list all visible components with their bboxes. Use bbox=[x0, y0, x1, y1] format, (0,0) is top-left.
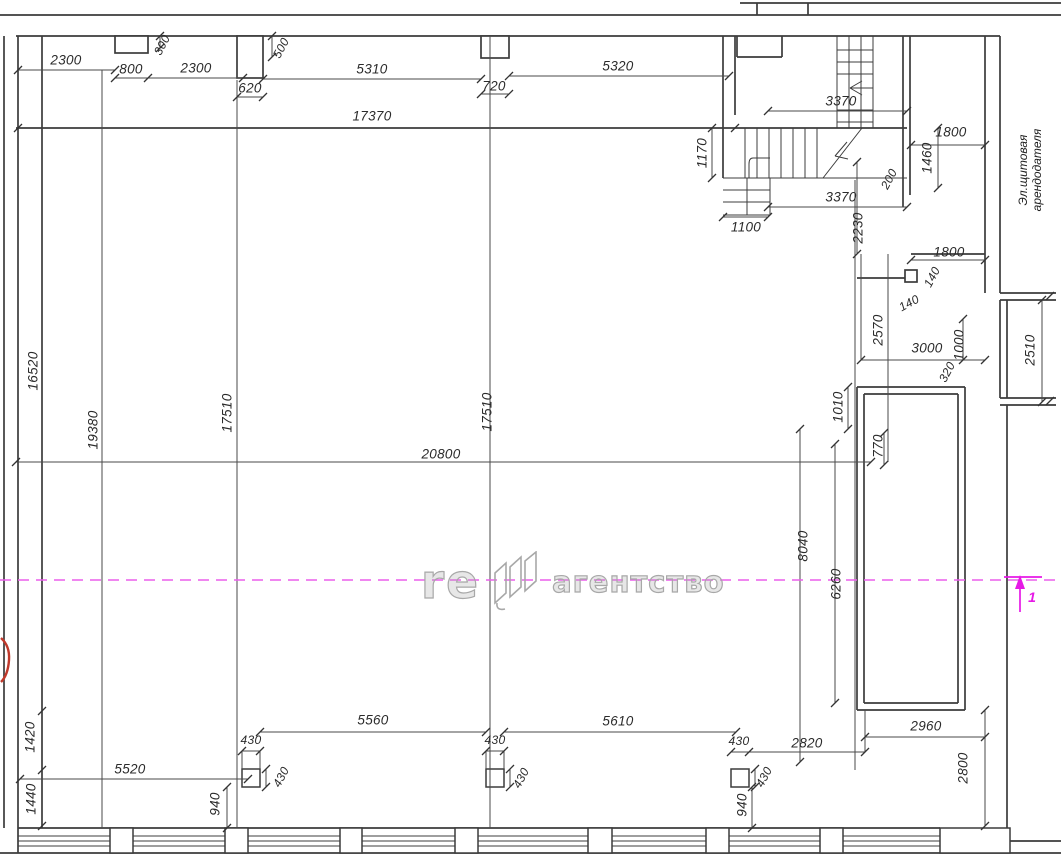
dim-label: 1800 bbox=[935, 125, 966, 140]
dim-label: 1800 bbox=[933, 245, 964, 260]
section-line bbox=[0, 575, 1061, 612]
section-mark-t1 bbox=[1004, 577, 1042, 612]
columns bbox=[242, 769, 749, 787]
dim-label: 6260 bbox=[829, 568, 844, 599]
wall-pier bbox=[237, 36, 263, 78]
dim-label: 1000 bbox=[952, 329, 967, 360]
dim-label: 940 bbox=[735, 793, 750, 816]
dim-label: 17510 bbox=[480, 392, 495, 431]
dim-label: 1170 bbox=[695, 138, 710, 168]
dim-label: 2230 bbox=[851, 212, 866, 243]
column bbox=[905, 270, 917, 282]
dim-label: 1440 bbox=[24, 783, 39, 814]
dim-label: 3370 bbox=[825, 94, 856, 109]
dim-label: 19380 bbox=[86, 410, 101, 449]
dim-label: 5320 bbox=[602, 59, 633, 74]
dim-label: 5310 bbox=[356, 62, 387, 77]
walls bbox=[0, 3, 1061, 853]
staircase bbox=[723, 36, 907, 215]
dimension-ticks bbox=[12, 32, 1054, 832]
dim-label: 2960 bbox=[910, 719, 941, 734]
solid-wall-segment bbox=[940, 828, 1010, 853]
dim-label: 430 bbox=[729, 734, 750, 748]
dim-label: 3370 bbox=[825, 190, 856, 205]
dim-label: 430 bbox=[485, 733, 506, 747]
dim-label: 20800 bbox=[421, 447, 460, 462]
dim-label: 2570 bbox=[871, 314, 886, 345]
dim-label: 1460 bbox=[920, 142, 935, 173]
dim-label: 2300 bbox=[50, 53, 81, 68]
dim-label: 2820 bbox=[791, 736, 822, 751]
stair-landing-steps bbox=[723, 178, 770, 215]
dim-label: 17510 bbox=[220, 393, 235, 432]
dim-label: 2300 bbox=[180, 61, 211, 76]
dim-label: 2510 bbox=[1023, 334, 1038, 365]
wall-pier bbox=[115, 36, 148, 53]
dim-label: 17370 bbox=[352, 109, 391, 124]
dim-label: 1420 bbox=[23, 721, 38, 752]
dim-label: 1100 bbox=[731, 220, 761, 235]
room-label-electrical: Эл.щитовая арендодателя bbox=[1016, 129, 1044, 212]
grid-bubble-partial bbox=[1, 638, 9, 682]
dim-label: 16520 bbox=[26, 351, 41, 390]
plan-linework bbox=[0, 0, 1061, 865]
dim-label: 2800 bbox=[956, 752, 971, 783]
dim-label: 620 bbox=[238, 81, 261, 96]
floor-plan: 2300 800 300 2300 620 500 5310 720 5320 … bbox=[0, 0, 1061, 865]
wall-pier bbox=[481, 36, 509, 58]
dim-label: 1010 bbox=[831, 391, 846, 422]
dim-label: 3000 bbox=[911, 341, 942, 356]
dim-label: 8040 bbox=[796, 530, 811, 561]
dim-label: 720 bbox=[482, 79, 505, 94]
dim-label: 800 bbox=[119, 62, 142, 77]
dim-label: 5610 bbox=[602, 714, 633, 729]
section-mark-label: 1 bbox=[1028, 589, 1036, 605]
stair-arrow-down bbox=[835, 142, 848, 159]
dim-label: 430 bbox=[241, 733, 262, 747]
dim-label: 770 bbox=[871, 434, 886, 457]
window-band bbox=[18, 836, 940, 846]
dim-label: 5560 bbox=[357, 713, 388, 728]
dim-label: 5520 bbox=[114, 762, 145, 777]
dim-label: 940 bbox=[208, 792, 223, 815]
stair-rail bbox=[749, 158, 770, 178]
